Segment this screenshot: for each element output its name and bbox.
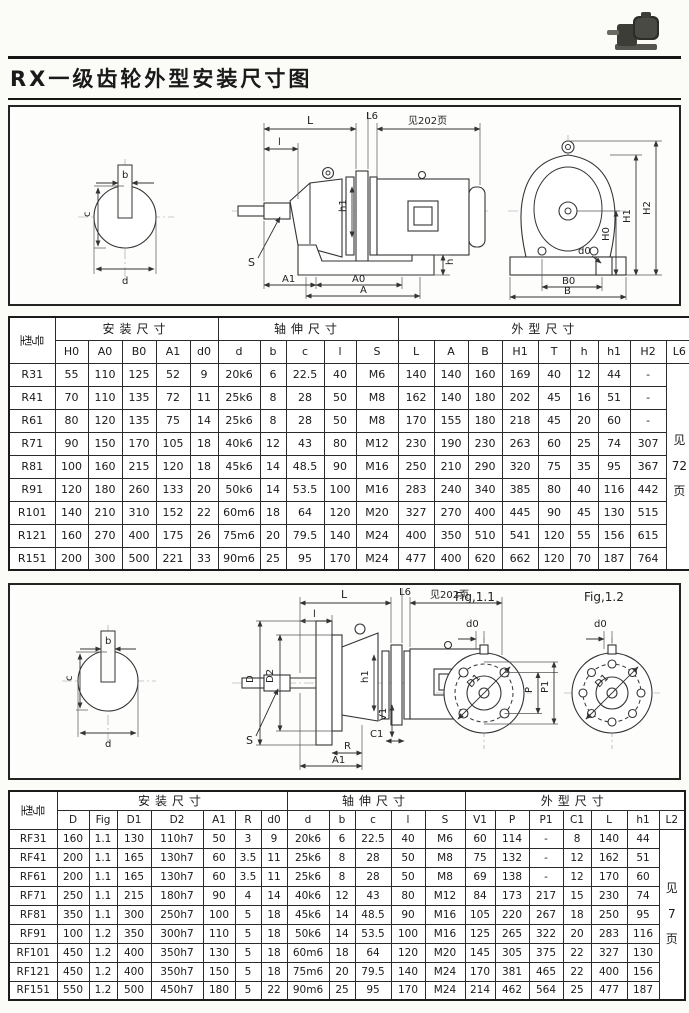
value-cell: 18 xyxy=(261,924,287,943)
value-cell: 6 xyxy=(260,363,286,386)
value-cell: 11 xyxy=(261,867,287,886)
dimension-table: 型号安装尺寸轴伸尺寸外型尺寸H0A0B0A1d0dbclSLABH1Thh1H2… xyxy=(8,316,689,571)
value-cell: 90 xyxy=(203,886,235,905)
value-cell: 75 xyxy=(465,848,495,867)
value-cell: M8 xyxy=(356,409,398,432)
value-cell: 120 xyxy=(538,524,570,547)
column-header: P xyxy=(495,810,529,829)
mounting-flange xyxy=(316,621,332,745)
column-header: S xyxy=(356,340,398,363)
table-row: R811001602151201845k61448.590M1625021029… xyxy=(9,455,689,478)
model-cell: R31 xyxy=(9,363,55,386)
value-cell: 60 xyxy=(203,848,235,867)
value-cell: 116 xyxy=(598,478,630,501)
dim-label-c: c xyxy=(64,676,75,682)
table-row: R1011402103101522260m61864120M2032727040… xyxy=(9,501,689,524)
value-cell: 90 xyxy=(391,905,425,924)
value-cell: 116 xyxy=(627,924,659,943)
value-cell: 50 xyxy=(324,386,356,409)
value-cell: 450h7 xyxy=(151,981,203,1000)
column-header: h xyxy=(570,340,598,363)
column-header: d0 xyxy=(261,810,287,829)
value-cell: 75m6 xyxy=(218,524,260,547)
fig-1-2-caption: Fig,1.2 xyxy=(584,590,624,604)
dim-label-D2: D2 xyxy=(265,669,276,683)
value-cell: 515 xyxy=(630,501,666,524)
value-cell: 100 xyxy=(55,455,88,478)
value-cell: 40 xyxy=(570,478,598,501)
value-cell: 230 xyxy=(591,886,627,905)
column-header: C1 xyxy=(563,810,591,829)
value-cell: 130h7 xyxy=(151,848,203,867)
value-cell: - xyxy=(529,867,563,886)
value-cell: 140 xyxy=(434,386,468,409)
model-cell: R91 xyxy=(9,478,55,501)
table-row: R1512003005002213390m62595170M2447740062… xyxy=(9,547,689,570)
value-cell: 1.1 xyxy=(89,905,117,924)
value-cell: 5 xyxy=(235,981,261,1000)
value-cell: 20 xyxy=(570,409,598,432)
value-cell: 3.5 xyxy=(235,867,261,886)
value-cell: 217 xyxy=(529,886,563,905)
column-header: d0 xyxy=(190,340,218,363)
side-view: L L6 见202页 l h1 S h xyxy=(232,111,488,299)
value-cell: 130 xyxy=(203,943,235,962)
value-cell: 18 xyxy=(190,455,218,478)
column-header: V1 xyxy=(465,810,495,829)
value-cell: 22 xyxy=(190,501,218,524)
value-cell: 70 xyxy=(55,386,88,409)
value-cell: M24 xyxy=(425,962,465,981)
dim-label-L6: L6 xyxy=(399,587,411,598)
model-cell: RF71 xyxy=(9,886,57,905)
value-cell: 120 xyxy=(88,409,122,432)
value-cell: 267 xyxy=(529,905,563,924)
table-row: R6180120135751425k682850M817015518021845… xyxy=(9,409,689,432)
value-cell: 53.5 xyxy=(355,924,391,943)
model-column-header: 型号 xyxy=(9,791,57,829)
table-row: R911201802601332050k61453.5100M162832403… xyxy=(9,478,689,501)
table-row: RF911001.2350300h711051850k61453.5100M16… xyxy=(9,924,685,943)
column-header: H2 xyxy=(630,340,666,363)
value-cell: 22.5 xyxy=(286,363,324,386)
fig-1-1-caption: Fig,1.1 xyxy=(455,590,495,604)
value-cell: 170 xyxy=(122,432,156,455)
value-cell: 26 xyxy=(190,524,218,547)
column-header: L6 xyxy=(666,340,689,363)
see-page-note: 见72页 xyxy=(666,363,689,570)
value-cell: 105 xyxy=(465,905,495,924)
value-cell: 218 xyxy=(502,409,538,432)
value-cell: 11 xyxy=(190,386,218,409)
value-cell: 1.1 xyxy=(89,848,117,867)
value-cell: 300h7 xyxy=(151,924,203,943)
model-cell: RF101 xyxy=(9,943,57,962)
value-cell: 25 xyxy=(563,981,591,1000)
foot-mounted-drawing-svg: b c d xyxy=(10,107,679,300)
value-cell: 477 xyxy=(591,981,627,1000)
value-cell: 240 xyxy=(434,478,468,501)
value-cell: 162 xyxy=(398,386,434,409)
value-cell: 50 xyxy=(203,829,235,848)
value-cell: 162 xyxy=(591,848,627,867)
value-cell: 25k6 xyxy=(218,386,260,409)
value-cell: 155 xyxy=(434,409,468,432)
flange-mounted-drawing-svg: b c d xyxy=(10,585,679,774)
value-cell: 300 xyxy=(88,547,122,570)
foot-mounted-dimension-table: 型号安装尺寸轴伸尺寸外型尺寸H0A0B0A1d0dbclSLABH1Thh1H2… xyxy=(8,316,681,571)
value-cell: 60 xyxy=(627,867,659,886)
model-cell: RF31 xyxy=(9,829,57,848)
value-cell: 44 xyxy=(627,829,659,848)
value-cell: 445 xyxy=(502,501,538,524)
catalog-page: RX一级齿轮外型安装尺寸图 xyxy=(0,0,689,1005)
value-cell: 16 xyxy=(570,386,598,409)
value-cell: 125 xyxy=(465,924,495,943)
value-cell: 40k6 xyxy=(287,886,329,905)
value-cell: 350h7 xyxy=(151,943,203,962)
value-cell: 90 xyxy=(55,432,88,455)
value-cell: 138 xyxy=(495,867,529,886)
value-cell: 20 xyxy=(260,524,286,547)
column-header: B xyxy=(468,340,502,363)
dim-label-L: L xyxy=(307,114,314,127)
value-cell: - xyxy=(630,409,666,432)
value-cell: 80 xyxy=(391,886,425,905)
value-cell: 156 xyxy=(598,524,630,547)
table-row: RF311601.1130110h7503920k6622.540M660114… xyxy=(9,829,685,848)
value-cell: 500 xyxy=(117,981,151,1000)
value-cell: 28 xyxy=(286,386,324,409)
value-cell: 375 xyxy=(529,943,563,962)
column-header: h1 xyxy=(598,340,630,363)
value-cell: 477 xyxy=(398,547,434,570)
value-cell: 60 xyxy=(598,409,630,432)
value-cell: 95 xyxy=(598,455,630,478)
value-cell: M8 xyxy=(425,867,465,886)
value-cell: 156 xyxy=(627,962,659,981)
value-cell: M24 xyxy=(425,981,465,1000)
model-cell: RF121 xyxy=(9,962,57,981)
value-cell: 105 xyxy=(156,432,190,455)
flange-view-fig-1-1: Fig,1.1 d0 P xyxy=(436,590,558,749)
value-cell: 132 xyxy=(495,848,529,867)
value-cell: 170 xyxy=(324,547,356,570)
value-cell: 14 xyxy=(260,455,286,478)
value-cell: 400 xyxy=(591,962,627,981)
value-cell: M16 xyxy=(425,905,465,924)
value-cell: 385 xyxy=(502,478,538,501)
value-cell: 564 xyxy=(529,981,563,1000)
value-cell: 400 xyxy=(468,501,502,524)
value-cell: 400 xyxy=(398,524,434,547)
value-cell: 45 xyxy=(538,409,570,432)
table-row: RF813501.1300250h710051845k61448.590M161… xyxy=(9,905,685,924)
value-cell: 465 xyxy=(529,962,563,981)
value-cell: 230 xyxy=(468,432,502,455)
value-cell: 210 xyxy=(434,455,468,478)
dim-label-l: l xyxy=(313,609,316,620)
table-row: R1211602704001752675m62079.5140M24400350… xyxy=(9,524,689,547)
dim-label-d: d xyxy=(122,276,128,287)
column-header: R xyxy=(235,810,261,829)
value-cell: 50k6 xyxy=(218,478,260,501)
value-cell: 40 xyxy=(324,363,356,386)
group-header: 安装尺寸 xyxy=(55,317,218,340)
value-cell: 170 xyxy=(398,409,434,432)
value-cell: 22 xyxy=(563,962,591,981)
value-cell: 48.5 xyxy=(286,455,324,478)
value-cell: 764 xyxy=(630,547,666,570)
value-cell: 60 xyxy=(465,829,495,848)
value-cell: 442 xyxy=(630,478,666,501)
value-cell: 33 xyxy=(190,547,218,570)
table-row: R315511012552920k6622.540M61401401601694… xyxy=(9,363,689,386)
value-cell: 4 xyxy=(235,886,261,905)
value-cell: 270 xyxy=(88,524,122,547)
value-cell: 290 xyxy=(468,455,502,478)
value-cell: 662 xyxy=(502,547,538,570)
value-cell: - xyxy=(630,386,666,409)
value-cell: 79.5 xyxy=(355,962,391,981)
value-cell: 45k6 xyxy=(218,455,260,478)
dim-label-L6: L6 xyxy=(366,111,378,122)
value-cell: 64 xyxy=(355,943,391,962)
model-cell: R41 xyxy=(9,386,55,409)
value-cell: 64 xyxy=(286,501,324,524)
value-cell: M8 xyxy=(356,386,398,409)
value-cell: 40k6 xyxy=(218,432,260,455)
value-cell: 1.2 xyxy=(89,981,117,1000)
value-cell: 100 xyxy=(57,924,89,943)
value-cell: 52 xyxy=(156,363,190,386)
end-view: H0 H1 H2 d0 B0 B xyxy=(508,135,662,300)
dim-label-H2: H2 xyxy=(642,201,653,215)
value-cell: - xyxy=(529,848,563,867)
value-cell: 6 xyxy=(329,829,355,848)
value-cell: 55 xyxy=(570,524,598,547)
value-cell: 50 xyxy=(391,867,425,886)
value-cell: 18 xyxy=(190,432,218,455)
value-cell: 44 xyxy=(598,363,630,386)
value-cell: 180 xyxy=(468,409,502,432)
value-cell: 221 xyxy=(156,547,190,570)
value-cell: 170 xyxy=(465,962,495,981)
column-header: D1 xyxy=(117,810,151,829)
value-cell: 75 xyxy=(156,409,190,432)
value-cell: 110h7 xyxy=(151,829,203,848)
gearmotor-photo xyxy=(605,8,667,54)
value-cell: 25 xyxy=(570,432,598,455)
value-cell: 400 xyxy=(117,962,151,981)
value-cell: 140 xyxy=(434,363,468,386)
value-cell: 350 xyxy=(57,905,89,924)
value-cell: M6 xyxy=(356,363,398,386)
value-cell: 5 xyxy=(235,924,261,943)
value-cell: 327 xyxy=(398,501,434,524)
column-header: d xyxy=(218,340,260,363)
value-cell: 20k6 xyxy=(218,363,260,386)
value-cell: 43 xyxy=(286,432,324,455)
value-cell: 28 xyxy=(355,848,391,867)
value-cell: M16 xyxy=(425,924,465,943)
value-cell: 114 xyxy=(495,829,529,848)
flange-view-fig-1-2: Fig,1.2 d0 D1 xyxy=(564,590,660,749)
dim-label-A0: A0 xyxy=(352,274,365,285)
dim-label-d0: d0 xyxy=(466,619,479,630)
value-cell: M24 xyxy=(356,524,398,547)
value-cell: 14 xyxy=(190,409,218,432)
value-cell: 1.1 xyxy=(89,829,117,848)
table-row: R71901501701051840k6124380M1223019023026… xyxy=(9,432,689,455)
value-cell: 367 xyxy=(630,455,666,478)
dim-label-c: c xyxy=(82,212,93,218)
value-cell: 160 xyxy=(88,455,122,478)
group-header: 外型尺寸 xyxy=(465,791,685,810)
value-cell: 160 xyxy=(468,363,502,386)
value-cell: 200 xyxy=(57,867,89,886)
dim-label-d0: d0 xyxy=(578,246,591,257)
value-cell: 95 xyxy=(286,547,324,570)
value-cell: 615 xyxy=(630,524,666,547)
page-top xyxy=(8,0,681,56)
value-cell: 100 xyxy=(203,905,235,924)
value-cell: 60m6 xyxy=(218,501,260,524)
value-cell: 90 xyxy=(538,501,570,524)
value-cell: 305 xyxy=(495,943,529,962)
value-cell: 74 xyxy=(598,432,630,455)
value-cell: 110 xyxy=(203,924,235,943)
dim-label-b: b xyxy=(122,170,128,181)
value-cell: M20 xyxy=(356,501,398,524)
value-cell: M8 xyxy=(425,848,465,867)
value-cell: 263 xyxy=(502,432,538,455)
value-cell: 55 xyxy=(55,363,88,386)
value-cell: 12 xyxy=(563,867,591,886)
model-cell: R61 xyxy=(9,409,55,432)
value-cell: 60m6 xyxy=(287,943,329,962)
table-row: RF412001.1165130h7603.51125k682850M87513… xyxy=(9,848,685,867)
value-cell: 250 xyxy=(57,886,89,905)
column-header: L xyxy=(591,810,627,829)
value-cell: 51 xyxy=(627,848,659,867)
column-header: H1 xyxy=(502,340,538,363)
value-cell: 72 xyxy=(156,386,190,409)
value-cell: 381 xyxy=(495,962,529,981)
value-cell: M20 xyxy=(425,943,465,962)
value-cell: 5 xyxy=(235,905,261,924)
value-cell: 260 xyxy=(122,478,156,501)
value-cell: 350h7 xyxy=(151,962,203,981)
value-cell: 310 xyxy=(122,501,156,524)
value-cell: 22 xyxy=(261,981,287,1000)
column-header: c xyxy=(286,340,324,363)
value-cell: 1.1 xyxy=(89,867,117,886)
value-cell: 160 xyxy=(57,829,89,848)
value-cell: 350 xyxy=(117,924,151,943)
value-cell: 270 xyxy=(434,501,468,524)
value-cell: 75m6 xyxy=(287,962,329,981)
value-cell: 620 xyxy=(468,547,502,570)
value-cell: 20 xyxy=(329,962,355,981)
column-header: P1 xyxy=(529,810,563,829)
value-cell: 5 xyxy=(235,962,261,981)
value-cell: 175 xyxy=(156,524,190,547)
model-cell: R101 xyxy=(9,501,55,524)
value-cell: 1.2 xyxy=(89,943,117,962)
dim-label-V1: V1 xyxy=(378,708,389,721)
value-cell: 190 xyxy=(434,432,468,455)
column-header: B0 xyxy=(122,340,156,363)
value-cell: 15 xyxy=(563,886,591,905)
value-cell: 90m6 xyxy=(287,981,329,1000)
column-header: c xyxy=(355,810,391,829)
value-cell: 180 xyxy=(203,981,235,1000)
dim-label-L: L xyxy=(341,588,348,601)
value-cell: 150 xyxy=(203,962,235,981)
value-cell: 250 xyxy=(398,455,434,478)
value-cell: 40 xyxy=(538,363,570,386)
value-cell: 133 xyxy=(156,478,190,501)
value-cell: 12 xyxy=(570,363,598,386)
value-cell: 95 xyxy=(355,981,391,1000)
shaft-section-view: b c d xyxy=(62,625,156,750)
value-cell: 169 xyxy=(502,363,538,386)
value-cell: 215 xyxy=(122,455,156,478)
value-cell: 100 xyxy=(324,478,356,501)
value-cell: 140 xyxy=(55,501,88,524)
table-row: RF1515501.2500450h718052290m62595170M242… xyxy=(9,981,685,1000)
column-header: d xyxy=(287,810,329,829)
value-cell: 130 xyxy=(117,829,151,848)
dim-label-l: l xyxy=(278,137,281,148)
value-cell: - xyxy=(630,363,666,386)
column-header: D xyxy=(57,810,89,829)
value-cell: 214 xyxy=(465,981,495,1000)
value-cell: 160 xyxy=(55,524,88,547)
value-cell: 20 xyxy=(563,924,591,943)
value-cell: 135 xyxy=(122,409,156,432)
value-cell: M12 xyxy=(356,432,398,455)
value-cell: 120 xyxy=(538,547,570,570)
column-header: S xyxy=(425,810,465,829)
value-cell: 130 xyxy=(598,501,630,524)
value-cell: 1.1 xyxy=(89,886,117,905)
value-cell: 140 xyxy=(591,829,627,848)
flange-mounted-dimension-table: 型号安装尺寸轴伸尺寸外型尺寸DFigD1D2A1Rd0dbclSV1PP1C1L… xyxy=(8,790,681,1001)
column-header: b xyxy=(260,340,286,363)
dim-label-P: P xyxy=(524,687,535,693)
value-cell: 140 xyxy=(324,524,356,547)
value-cell: 170 xyxy=(591,867,627,886)
value-cell: 9 xyxy=(261,829,287,848)
column-header: T xyxy=(538,340,570,363)
value-cell: 283 xyxy=(591,924,627,943)
value-cell: 8 xyxy=(260,386,286,409)
value-cell: 8 xyxy=(563,829,591,848)
value-cell: 210 xyxy=(88,501,122,524)
value-cell: 14 xyxy=(329,924,355,943)
value-cell: 110 xyxy=(88,363,122,386)
shaft-section-view: b c d xyxy=(78,159,174,287)
value-cell: 165 xyxy=(117,867,151,886)
value-cell: 130h7 xyxy=(151,867,203,886)
value-cell: 327 xyxy=(591,943,627,962)
column-header: D2 xyxy=(151,810,203,829)
value-cell: 80 xyxy=(55,409,88,432)
value-cell: M6 xyxy=(425,829,465,848)
value-cell: 60 xyxy=(538,432,570,455)
